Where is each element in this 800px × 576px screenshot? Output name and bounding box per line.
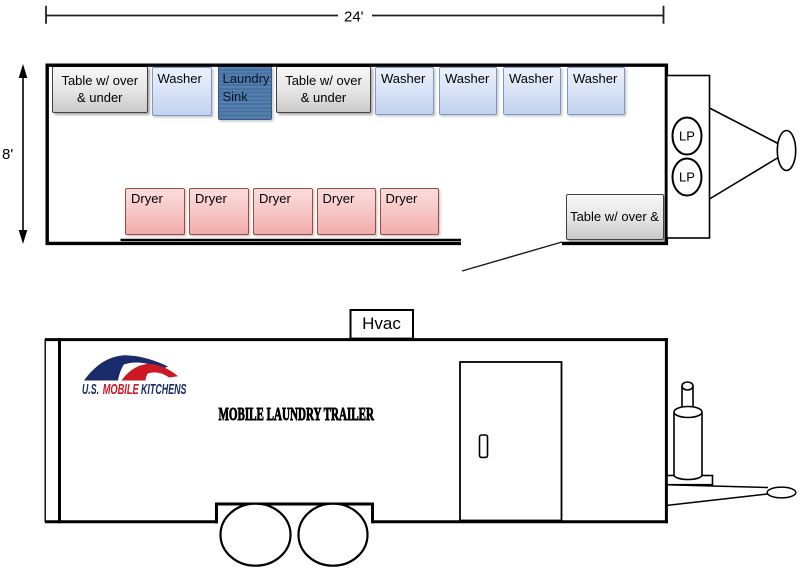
- svg-text:U.S.: U.S.: [82, 382, 99, 398]
- svg-text:LP: LP: [679, 129, 695, 144]
- svg-text:KITCHENS: KITCHENS: [141, 382, 187, 398]
- svg-text:8': 8': [2, 146, 13, 163]
- svg-text:LP: LP: [679, 170, 695, 185]
- svg-text:Hvac: Hvac: [362, 314, 401, 333]
- svg-text:24': 24': [344, 9, 364, 26]
- svg-text:MOBILE LAUNDRY TRAILER: MOBILE LAUNDRY TRAILER: [219, 404, 375, 424]
- svg-text:MOBILE: MOBILE: [103, 382, 140, 398]
